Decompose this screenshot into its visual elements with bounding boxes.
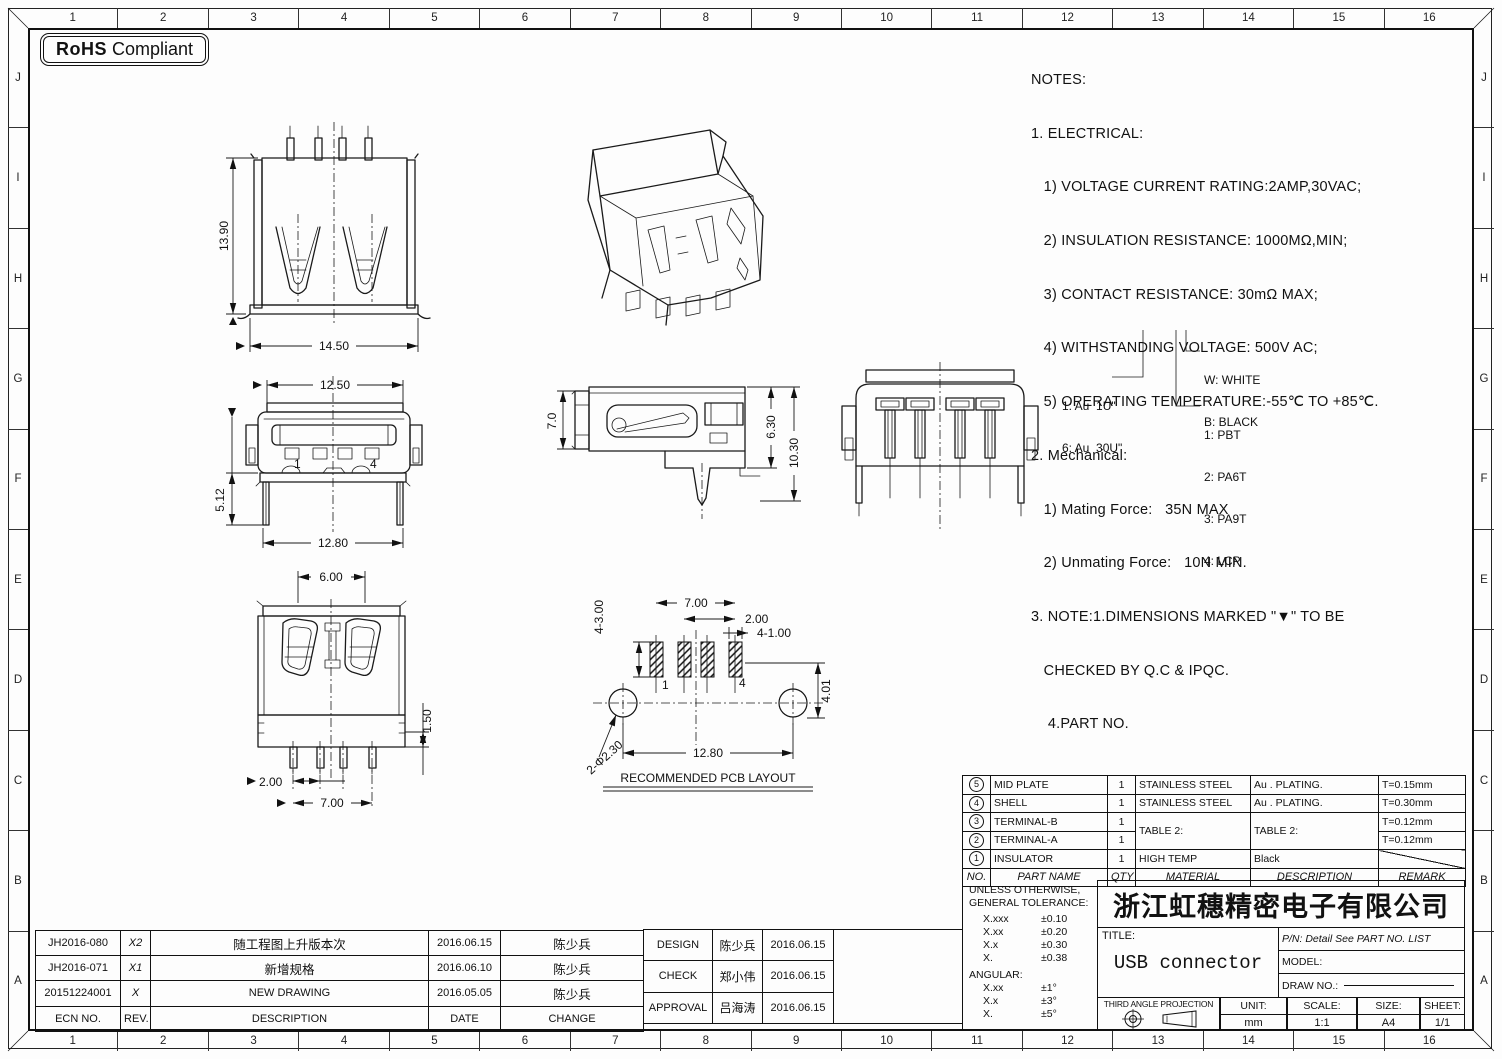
approval-row: DESIGN 陈少兵 2016.06.15 — [644, 930, 963, 961]
tol-value: ±0.10 — [1041, 913, 1067, 926]
tolerance-angular-row: X.±5° — [969, 1008, 1087, 1021]
tol-label: X.x — [969, 995, 1041, 1008]
top-dim-width: 6.00 — [298, 570, 365, 603]
rohs-badge-inner: RoHS Compliant — [43, 36, 206, 63]
approval-date: 2016.06.15 — [763, 930, 834, 961]
model-cell: MODEL: — [1278, 950, 1465, 974]
view-front-drawing: 12.50 1 4 — [210, 372, 455, 572]
svg-text:6.30: 6.30 — [764, 415, 778, 439]
part-name: TERMINAL-A — [991, 831, 1108, 850]
side-dim-left: 7.0 — [545, 391, 575, 449]
part-description: Au . PLATING. — [1251, 776, 1379, 795]
rev-header: DATE — [429, 1006, 501, 1031]
back-contacts — [276, 227, 387, 294]
drawing-sheet: 12345678910111213141516 1234567891011121… — [0, 0, 1502, 1059]
tolerance-row: X.xxx±0.10 — [969, 913, 1087, 926]
title-label: TITLE: — [1098, 928, 1278, 942]
parts-table: 5 MID PLATE 1 STAINLESS STEEL Au . PLATI… — [962, 775, 1466, 887]
approval-role: DESIGN — [644, 930, 713, 961]
svg-text:10.30: 10.30 — [787, 438, 801, 468]
sheet-label: SHEET: — [1421, 998, 1464, 1015]
tolerance-angular-label: ANGULAR: — [969, 969, 1097, 982]
notes-line: 3) CONTACT RESISTANCE: 30mΩ MAX; — [1031, 287, 1467, 305]
unit-label: UNIT: — [1221, 998, 1286, 1015]
svg-text:12.80: 12.80 — [318, 536, 348, 550]
rev-ecn: 20151224001 — [36, 981, 121, 1006]
part-qty: 1 — [1108, 831, 1136, 850]
parts-row-3: 3 TERMINAL-B 1 TABLE 2: TABLE 2: T=0.12m… — [963, 813, 1466, 832]
top-dim-pitch: 2.00 — [247, 775, 345, 789]
notes-line: 4.PART NO. — [1031, 716, 1467, 734]
draw-no-label: DRAW NO.: — [1282, 980, 1338, 992]
legend-material: 1: PBT 2: PA6T 3: PA9T 4: LCP — [1204, 400, 1246, 596]
notes-line: NOTES: — [1031, 72, 1467, 90]
approval-date: 2016.06.15 — [763, 961, 834, 992]
rev-rev: X1 — [121, 956, 151, 981]
top-dim-span: 7.00 — [277, 796, 372, 810]
pcb-dim-span: 7.00 — [656, 596, 735, 610]
rev-date: 2016.05.05 — [429, 981, 501, 1006]
notes-line: 1) VOLTAGE CURRENT RATING:2AMP,30VAC; — [1031, 179, 1467, 197]
draw-no-blank-line — [1344, 985, 1454, 986]
tol-value: ±0.20 — [1041, 926, 1067, 939]
view-top-drawing: 6.00 — [233, 563, 473, 818]
draw-no-cell: DRAW NO.: — [1278, 973, 1465, 998]
part-name: MID PLATE — [991, 776, 1108, 795]
size-value: A4 — [1358, 1015, 1419, 1031]
legend-material-4: 4: LCP — [1204, 554, 1246, 568]
top-latches — [282, 619, 380, 676]
part-description: TABLE 2: — [1251, 813, 1379, 850]
rohs-rest-text: Compliant — [112, 39, 193, 59]
approval-name: 郑小伟 — [713, 961, 763, 992]
svg-text:1.50: 1.50 — [420, 709, 434, 733]
part-no-badge: 1 — [969, 851, 984, 866]
size-cell: SIZE: A4 — [1357, 997, 1420, 1031]
sheet-cell: SHEET: 1/1 — [1420, 997, 1465, 1031]
part-material: HIGH TEMP — [1136, 850, 1251, 869]
svg-text:5.12: 5.12 — [213, 488, 227, 512]
unit-cell: UNIT: mm — [1220, 997, 1287, 1031]
rev-header: DESCRIPTION — [151, 1006, 429, 1031]
rev-ecn: JH2016-071 — [36, 956, 121, 981]
notes-line: 2) Unmating Force: 10N MIN. — [1031, 555, 1467, 573]
rev-change: 陈少兵 — [501, 931, 644, 956]
pcb-pin4-label: 4 — [739, 676, 746, 690]
notes-line: 2) INSULATION RESISTANCE: 1000MΩ,MIN; — [1031, 233, 1467, 251]
notes-line: 3. NOTE:1.DIMENSIONS MARKED "▼" TO BE — [1031, 609, 1467, 627]
parts-row-5: 5 MID PLATE 1 STAINLESS STEEL Au . PLATI… — [963, 776, 1466, 795]
unit-value: mm — [1221, 1015, 1286, 1031]
iso-side-holes — [727, 208, 748, 280]
legend-plating-1: 1: Au 1U" — [1062, 399, 1122, 413]
pcb-dim-width: 12.80 — [623, 723, 793, 760]
approval-date: 2016.06.15 — [763, 992, 834, 1023]
rev-description: NEW DRAWING — [151, 981, 429, 1006]
part-material: STAINLESS STEEL — [1136, 794, 1251, 813]
notes-line: 1. ELECTRICAL: — [1031, 126, 1467, 144]
scale-label: SCALE: — [1288, 998, 1356, 1015]
part-qty: 1 — [1108, 813, 1136, 832]
rev-date: 2016.06.10 — [429, 956, 501, 981]
scale-cell: SCALE: 1:1 — [1287, 997, 1357, 1031]
tol-label: X. — [969, 952, 1041, 965]
tol-value: ±5° — [1041, 1008, 1057, 1021]
top-outline — [257, 601, 406, 715]
part-remark: T=0.15mm — [1379, 776, 1466, 795]
tolerance-row: X.x±0.30 — [969, 939, 1087, 952]
view-back-drawing: 13.90 14.50 — [150, 118, 450, 368]
svg-text:4-3.00: 4-3.00 — [592, 600, 606, 634]
parts-row-4: 4 SHELL 1 STAINLESS STEEL Au . PLATING. … — [963, 794, 1466, 813]
rev-change: 陈少兵 — [501, 956, 644, 981]
rev-header: REV. — [121, 1006, 151, 1031]
revision-row: JH2016-080 X2 随工程图上升版本次 2016.06.15 陈少兵 — [36, 931, 644, 956]
front-pin1-label: 1 — [294, 457, 301, 471]
parts-row-1: 1 INSULATOR 1 HIGH TEMP Black — [963, 850, 1466, 869]
tol-value: ±0.30 — [1041, 939, 1067, 952]
svg-text:RECOMMENDED PCB LAYOUT: RECOMMENDED PCB LAYOUT — [620, 771, 796, 785]
side-outline — [572, 387, 745, 451]
view-pcb-drawing: 1 4 4-3.00 7.00 2.00 4-1.00 — [585, 575, 840, 805]
svg-text:13.90: 13.90 — [217, 221, 231, 251]
legend-material-1: 1: PBT — [1204, 428, 1246, 442]
tol-label: X.xx — [969, 926, 1041, 939]
rev-description: 新增规格 — [151, 956, 429, 981]
rev-rev: X — [121, 981, 151, 1006]
iso-outline — [588, 130, 763, 305]
rev-ecn: JH2016-080 — [36, 931, 121, 956]
tol-value: ±1° — [1041, 982, 1057, 995]
tol-label: X. — [969, 1008, 1041, 1021]
svg-text:12.80: 12.80 — [693, 746, 723, 760]
pcb-holes-leader: 2-Φ2.30 — [585, 715, 626, 777]
tolerance-title-1: UNLESS OTHERWISE, — [969, 884, 1097, 897]
pcb-dim-offset: 4.01 — [745, 663, 833, 718]
part-material: TABLE 2: — [1136, 813, 1251, 850]
part-remark-slash — [1379, 850, 1466, 869]
svg-text:14.50: 14.50 — [319, 339, 349, 353]
part-remark: T=0.12mm — [1379, 831, 1466, 850]
rev-header: CHANGE — [501, 1006, 644, 1031]
part-number-cell: P/N: Detail See PART NO. LIST — [1278, 927, 1465, 951]
svg-text:7.00: 7.00 — [684, 596, 708, 610]
svg-text:2.00: 2.00 — [259, 775, 283, 789]
rev-description: 随工程图上升版本次 — [151, 931, 429, 956]
part-qty: 1 — [1108, 794, 1136, 813]
pcb-pin1-label: 1 — [662, 678, 669, 692]
tolerance-angular-row: X.xx±1° — [969, 982, 1087, 995]
approval-name: 陈少兵 — [713, 930, 763, 961]
svg-text:7.0: 7.0 — [545, 412, 559, 429]
projection-label: THIRD ANGLE PROJECTION — [1098, 999, 1219, 1009]
legend-material-2: 2: PA6T — [1204, 470, 1246, 484]
tol-value: ±0.38 — [1041, 952, 1067, 965]
third-angle-projection-icon — [1098, 1009, 1219, 1029]
rohs-bold-text: RoHS — [56, 39, 107, 59]
title-cell: TITLE: USB connector — [1097, 927, 1279, 998]
part-qty: 1 — [1108, 776, 1136, 795]
back-dim-height: 13.90 — [217, 158, 258, 325]
tol-label: X.xxx — [969, 913, 1041, 926]
revision-row: JH2016-071 X1 新增规格 2016.06.10 陈少兵 — [36, 956, 644, 981]
rev-date: 2016.06.15 — [429, 931, 501, 956]
part-no-badge: 5 — [969, 777, 984, 792]
revision-row: 20151224001 X NEW DRAWING 2016.05.05 陈少兵 — [36, 981, 644, 1006]
approval-role: CHECK — [644, 961, 713, 992]
front-dim-top: 12.50 — [253, 378, 403, 403]
size-label: SIZE: — [1358, 998, 1419, 1015]
part-qty: 1 — [1108, 850, 1136, 869]
part-name: TERMINAL-B — [991, 813, 1108, 832]
scale-value: 1:1 — [1288, 1015, 1356, 1031]
part-no-badge: 2 — [969, 833, 984, 848]
iso-springs — [648, 216, 718, 273]
svg-text:12.50: 12.50 — [320, 378, 350, 392]
part-name: INSULATOR — [991, 850, 1108, 869]
side-foot-leg — [665, 451, 760, 505]
back-outline — [238, 126, 430, 319]
tolerance-row: X.xx±0.20 — [969, 926, 1087, 939]
rev-rev: X2 — [121, 931, 151, 956]
revision-table: JH2016-080 X2 随工程图上升版本次 2016.06.15 陈少兵 J… — [35, 930, 644, 1032]
part-name: SHELL — [991, 794, 1108, 813]
part-material: STAINLESS STEEL — [1136, 776, 1251, 795]
view-side-drawing: 7.0 6.30 10.30 — [545, 373, 810, 523]
drawing-title: USB connector — [1098, 952, 1278, 974]
tolerance-row: X.±0.38 — [969, 952, 1087, 965]
top-base — [258, 715, 405, 774]
approval-table: DESIGN 陈少兵 2016.06.15 CHECK 郑小伟 2016.06.… — [643, 929, 963, 1024]
back-dim-width: 14.50 — [236, 318, 418, 353]
legend-color-white: W: WHITE — [1204, 373, 1260, 387]
projection-cell: THIRD ANGLE PROJECTION — [1097, 997, 1220, 1031]
svg-text:4-1.00: 4-1.00 — [757, 626, 791, 640]
company-name: 浙江虹穗精密电子有限公司 — [1097, 880, 1465, 928]
approval-name: 吕海涛 — [713, 992, 763, 1023]
approval-empty-cell — [834, 930, 963, 1024]
rev-change: 陈少兵 — [501, 981, 644, 1006]
notes-line: 1) Mating Force: 35N MAX — [1031, 502, 1467, 520]
view-bottom-drawing — [838, 358, 1043, 538]
tolerance-title-2: GENERAL TOLERANCE: — [969, 897, 1097, 910]
tol-label: X.x — [969, 939, 1041, 952]
part-no-badge: 3 — [969, 814, 984, 829]
pcb-dim-padw: 4-1.00 — [723, 626, 791, 640]
svg-text:6.00: 6.00 — [319, 570, 343, 584]
part-no-badge: 4 — [969, 796, 984, 811]
svg-text:7.00: 7.00 — [320, 796, 344, 810]
pcb-title: RECOMMENDED PCB LAYOUT — [603, 771, 813, 791]
front-tongue-contacts — [272, 425, 396, 473]
approval-role: APPROVAL — [644, 992, 713, 1023]
rev-header: ECN NO. — [36, 1006, 121, 1031]
legend-material-3: 3: PA9T — [1204, 512, 1246, 526]
tol-label: X.xx — [969, 982, 1041, 995]
pcb-dim-padlen: 4-3.00 — [592, 600, 650, 677]
tolerance-angular-row: X.x±3° — [969, 995, 1087, 1008]
part-remark: T=0.30mm — [1379, 794, 1466, 813]
top-dim-right: 1.50 — [405, 703, 434, 775]
part-description: Black — [1251, 850, 1379, 869]
part-remark: T=0.12mm — [1379, 813, 1466, 832]
pcb-dim-pitch: 2.00 — [684, 612, 769, 626]
front-pin4-label: 4 — [370, 457, 377, 471]
notes-line: CHECKED BY Q.C & IPQC. — [1031, 663, 1467, 681]
part-description: Au . PLATING. — [1251, 794, 1379, 813]
svg-text:2.00: 2.00 — [745, 612, 769, 626]
view-isometric-drawing — [548, 108, 803, 343]
legend-plating-2: 6: Au 30U" — [1062, 441, 1122, 455]
svg-text:4.01: 4.01 — [819, 679, 833, 703]
tol-value: ±3° — [1041, 995, 1057, 1008]
rohs-badge: RoHS Compliant — [40, 33, 209, 66]
sheet-value: 1/1 — [1421, 1015, 1464, 1031]
revision-header-row: ECN NO. REV. DESCRIPTION DATE CHANGE — [36, 1006, 644, 1031]
legend-plating: 1: Au 1U" 6: Au 30U" — [1062, 371, 1122, 483]
tolerance-block: UNLESS OTHERWISE, GENERAL TOLERANCE: X.x… — [962, 880, 1097, 1031]
